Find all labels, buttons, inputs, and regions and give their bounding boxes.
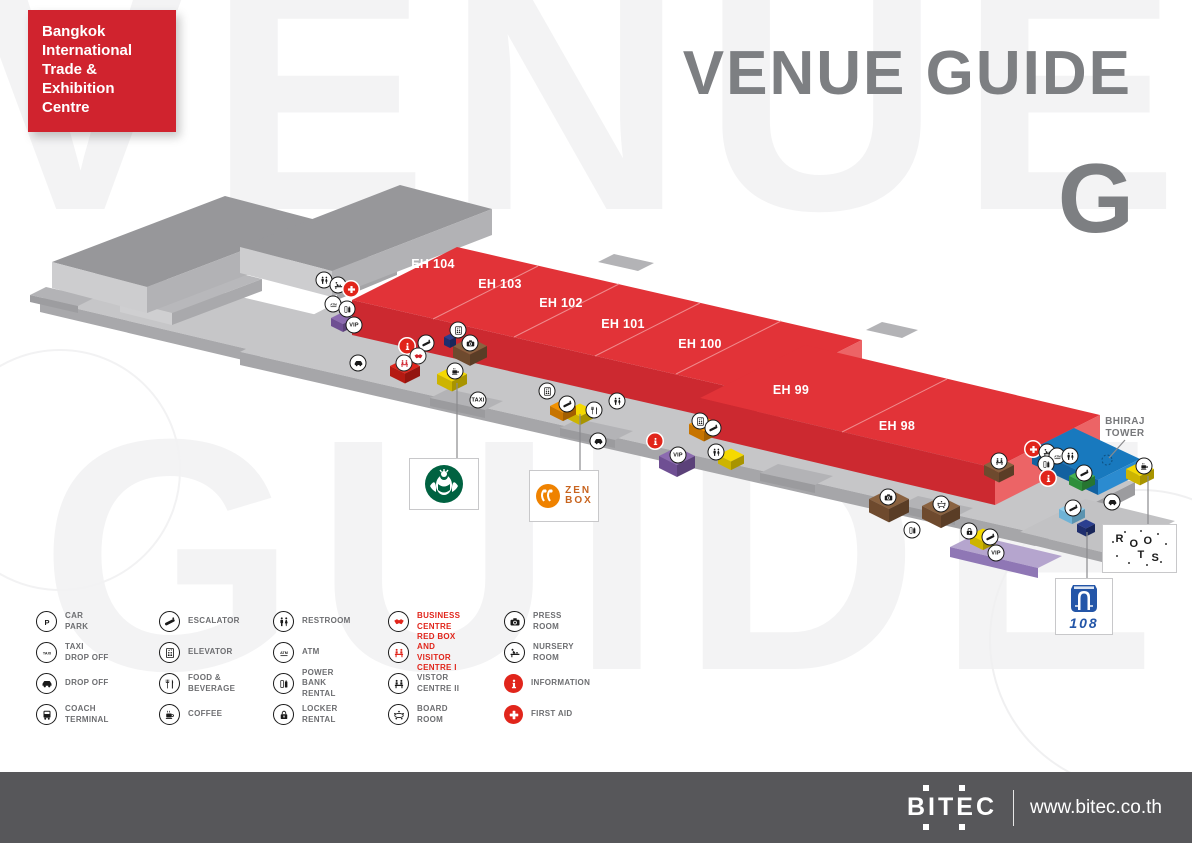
map-icon-coffee [1136, 458, 1153, 475]
roots-letter: R [1116, 533, 1124, 545]
lawson-station-logo: 108 [1055, 578, 1113, 635]
legend-label: LOCKER RENTAL [302, 704, 351, 725]
legend-label: COACH TERMINAL [65, 704, 109, 725]
press-icon [504, 611, 525, 632]
map-icon-vip: VIP [346, 317, 363, 334]
coffee-icon [159, 704, 180, 725]
map-icon-power-bank [904, 522, 921, 539]
map-icon-escalator [982, 529, 999, 546]
legend-item-taxi: TAXITAXI DROP OFF [36, 637, 109, 668]
zenbox-logo: ZEN BOX [529, 470, 599, 522]
starbucks-logo [409, 458, 479, 510]
legend-label: POWER BANK RENTAL [302, 668, 351, 699]
map-icon-elevator [539, 383, 556, 400]
legend-item-restroom: RESTROOM [273, 606, 351, 637]
drop-off-icon [36, 673, 57, 694]
map-icon-drop-off [1104, 494, 1121, 511]
legend-item-food: FOOD & BEVERAGE [159, 668, 240, 699]
legend-label: PRESS ROOM [533, 611, 590, 632]
footer-divider [1013, 790, 1014, 826]
svg-text:ATM: ATM [1054, 454, 1061, 458]
nursery-icon [504, 642, 525, 663]
map-icon-press [462, 335, 479, 352]
venue-guide-page: VENUE GUIDE [0, 0, 1192, 843]
svg-text:ATM: ATM [280, 651, 288, 655]
legend-label: TAXI DROP OFF [65, 642, 109, 663]
atm-icon: ATM [273, 642, 294, 663]
legend-label: ELEVATOR [188, 647, 233, 657]
hall-label-eh-103: EH 103 [478, 277, 522, 291]
legend-item-first-aid: FIRST AID [504, 699, 590, 730]
roots-logo: ROOTS [1102, 524, 1177, 573]
legend-label: NURSERY ROOM [533, 642, 590, 663]
map-icon-escalator [705, 420, 722, 437]
legend-label: CAR PARK [65, 611, 109, 632]
brand-line: International [42, 41, 176, 60]
legend-label: RED BOXAND VISITOR CENTRE I [417, 632, 460, 674]
map-icon-locker [961, 523, 978, 540]
starbucks-siren-icon [424, 464, 464, 504]
legend-label: FOOD & BEVERAGE [188, 673, 240, 694]
svg-text:TAXI: TAXI [42, 651, 50, 655]
board-icon [388, 704, 409, 725]
legend-item-red-box: VISTOR CENTRE II [388, 668, 460, 699]
brand-line: Bangkok [42, 22, 176, 41]
bitec-brand-box: BangkokInternationalTrade &ExhibitionCen… [28, 10, 176, 132]
legend-column: PRESS ROOMNURSERY ROOMINFORMATIONFIRST A… [504, 606, 590, 730]
map-icon-board [933, 496, 950, 513]
legend-label: ATM [302, 647, 320, 657]
legend-item-escalator: ESCALATOR [159, 606, 240, 637]
map-icon-food [586, 402, 603, 419]
legend-label: COFFEE [188, 709, 222, 719]
elevator-icon [159, 642, 180, 663]
legend-item-coffee: COFFEE [159, 699, 240, 730]
legend-label: VISTOR CENTRE II [417, 673, 460, 694]
map-icon-power-bank [339, 301, 356, 318]
map-icon-restroom [1062, 448, 1079, 465]
legend-column: RESTROOMATMATMPOWER BANK RENTALLOCKER RE… [273, 606, 351, 730]
map-icon-press [880, 489, 897, 506]
map-icon-escalator [1076, 465, 1093, 482]
legend-item-elevator: ELEVATOR [159, 637, 240, 668]
map-icon-escalator [559, 396, 576, 413]
legend-item-board: BOARD ROOM [388, 699, 460, 730]
map-icon-vip: VIP [988, 545, 1005, 562]
legend-item-atm: ATMATM [273, 637, 351, 668]
coach-icon [36, 704, 57, 725]
zenbox-text-bottom: BOX [565, 496, 593, 506]
map-icon-drop-off [590, 433, 607, 450]
legend-item-press: PRESS ROOM [504, 606, 590, 637]
map-icon-escalator [1065, 500, 1082, 517]
map-icon-coffee [447, 363, 464, 380]
legend-label: RESTROOM [302, 616, 351, 626]
legend-item-nursery: NURSERY ROOM [504, 637, 590, 668]
map-icon-red-box [396, 355, 413, 372]
legend-item-power-bank: POWER BANK RENTAL [273, 668, 351, 699]
bitec-logo: BITEC [907, 795, 997, 820]
legend-item-coach: COACH TERMINAL [36, 699, 109, 730]
floor-letter: G [1058, 142, 1134, 255]
legend-item-car-park: PCAR PARK [36, 606, 109, 637]
map-icon-restroom [609, 393, 626, 410]
lawson-number: 108 [1069, 616, 1098, 630]
legend-item-drop-off: DROP OFF [36, 668, 109, 699]
escalator-icon [159, 611, 180, 632]
info-icon [504, 674, 523, 693]
website-url: www.bitec.co.th [1030, 797, 1162, 819]
legend-label: DROP OFF [65, 678, 109, 688]
map-icon-drop-off [350, 355, 367, 372]
legend-column: PCAR PARKTAXITAXI DROP OFFDROP OFFCOACH … [36, 606, 109, 730]
red-box-icon [388, 642, 409, 663]
hall-label-eh-98: EH 98 [879, 419, 915, 433]
taxi-icon: TAXI [36, 642, 57, 663]
lawson-shield-icon [1070, 583, 1098, 615]
roots-letter: T [1138, 549, 1145, 561]
svg-text:ATM: ATM [330, 302, 337, 306]
hall-label-eh-100: EH 100 [678, 337, 722, 351]
legend-label: BOARD ROOM [417, 704, 460, 725]
footer-bar: BITEC www.bitec.co.th [0, 772, 1192, 843]
locker-icon [273, 704, 294, 725]
map-icon-first-aid [344, 282, 359, 297]
legend-item-red-box: RED BOXAND VISITOR CENTRE I [388, 637, 460, 668]
legend-label: BUSINESS CENTRE [417, 611, 460, 632]
zenbox-icon [535, 483, 561, 509]
hall-label-eh-104: EH 104 [411, 257, 455, 271]
food-icon [159, 673, 180, 694]
legend-item-locker: LOCKER RENTAL [273, 699, 351, 730]
map-icon-info [1041, 471, 1056, 486]
map-icon-info [648, 434, 663, 449]
legend-label: INFORMATION [531, 678, 590, 688]
hall-label-eh-101: EH 101 [601, 317, 645, 331]
brand-line: Trade & [42, 60, 176, 79]
legend-item-info: INFORMATION [504, 668, 590, 699]
svg-text:P: P [44, 617, 49, 626]
power-bank-icon [273, 673, 294, 694]
map-icon-red-box [991, 453, 1008, 470]
roots-letter: S [1152, 552, 1159, 564]
legend-column: BUSINESS CENTRERED BOXAND VISITOR CENTRE… [388, 606, 460, 730]
legend-label: FIRST AID [531, 709, 573, 719]
bhiraj-tower-label: BHIRAJ TOWER [1096, 416, 1154, 440]
hall-label-eh-99: EH 99 [773, 383, 809, 397]
map-icon-taxi: TAXI [470, 392, 487, 409]
map-icon-restroom [708, 444, 725, 461]
car-park-icon: P [36, 611, 57, 632]
legend-column: ESCALATORELEVATORFOOD & BEVERAGECOFFEE [159, 606, 240, 730]
map-icon-vip: VIP [670, 447, 687, 464]
first-aid-icon [504, 705, 523, 724]
hall-label-eh-102: EH 102 [539, 296, 583, 310]
business-icon [388, 611, 409, 632]
brand-line: Centre [42, 98, 176, 117]
restroom-icon [273, 611, 294, 632]
roots-letter: O [1144, 535, 1153, 547]
page-title: VENUE GUIDE [683, 38, 1132, 109]
red-box-icon [388, 673, 409, 694]
legend-label: ESCALATOR [188, 616, 240, 626]
brand-line: Exhibition [42, 79, 176, 98]
